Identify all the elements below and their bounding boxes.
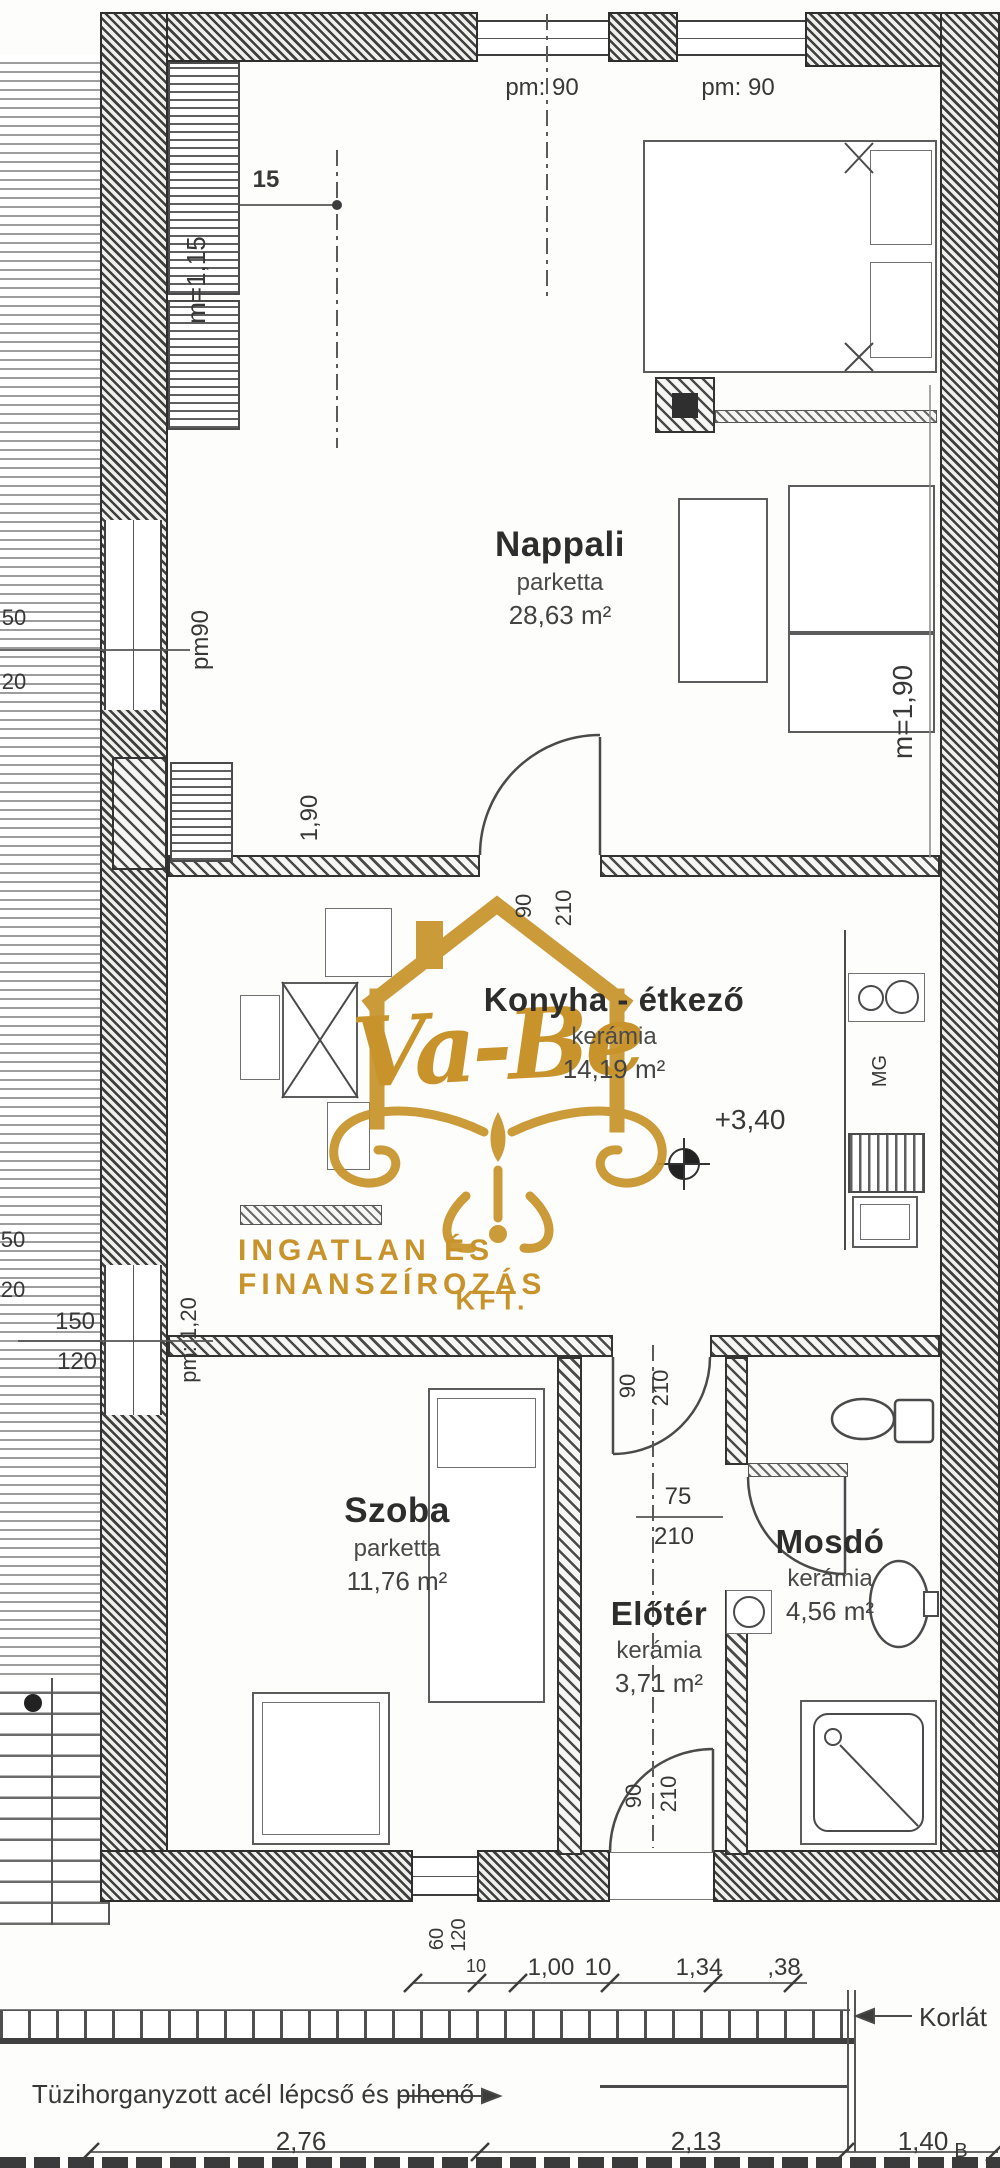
dim-150: 150 — [55, 1310, 95, 1334]
railing-label: Korlát — [919, 2004, 987, 2030]
stairs-note: Tüzihorganyzott acél lépcső és pihenő — [32, 2081, 474, 2107]
konyha-name: Konyha - étkező — [484, 981, 745, 1019]
dim-2-76: 2,76 — [276, 2128, 327, 2154]
door-mosdo-height: 210 — [654, 1525, 694, 1549]
window-left2-label: pm: 1,20 — [178, 1297, 200, 1383]
dim-10-a: 10 — [466, 1957, 486, 1975]
floor-plan-canvas: Va-Be INGATLAN ÉS FINANSZÍROZÁS KFT. Nap… — [0, 0, 1000, 2168]
dim-15: 15 — [253, 168, 280, 192]
flourish-center-bud — [491, 1112, 506, 1162]
mosdo-area: 4,56 m² — [776, 1596, 885, 1627]
dim-20-a: 20 — [2, 671, 26, 693]
eloter-name: Előtér — [611, 1595, 708, 1633]
room-label-eloter: Előtér kerámia 3,71 m² — [611, 1595, 708, 1699]
eloter-area: 3,71 m² — [611, 1668, 708, 1699]
door-mosdo-width: 75 — [665, 1485, 692, 1509]
height-left-label: m=1,15 — [183, 236, 209, 323]
mosdo-name: Mosdó — [776, 1523, 885, 1561]
szoba-floor: parketta — [344, 1535, 450, 1563]
window-top2-label: pm: 90 — [701, 76, 774, 100]
room-label-nappali: Nappali parketta 28,63 m² — [495, 525, 625, 631]
nappali-area: 28,63 m² — [495, 600, 625, 631]
height-right-label: m=1,90 — [889, 665, 917, 759]
section-mark-b: B — [954, 2141, 967, 2161]
dim-60: 60 — [427, 1928, 447, 1950]
eloter-floor: kerámia — [611, 1637, 708, 1665]
window-top1-label: pm: 90 — [505, 76, 578, 100]
konyha-floor: kerámia — [484, 1023, 745, 1051]
dim-20-b: 20 — [1, 1279, 25, 1301]
elevation-label: +3,40 — [715, 1106, 786, 1134]
dim-1-40: 1,40 — [898, 2128, 949, 2154]
dim-1-90: 1,90 — [298, 795, 322, 842]
dim-120: 120 — [57, 1350, 97, 1374]
door3-width: 90 — [623, 1784, 645, 1808]
dim-50-a: 50 — [2, 607, 26, 629]
room-label-mosdo: Mosdó kerámia 4,56 m² — [776, 1523, 885, 1627]
door2-height: 210 — [650, 1370, 672, 1407]
door2-width: 90 — [617, 1374, 639, 1398]
watermark-company-line2: KFT. — [456, 1286, 529, 1317]
konyha-area: 14,19 m² — [484, 1054, 745, 1085]
door1-height: 210 — [553, 890, 575, 927]
szoba-area: 11,76 m² — [344, 1566, 450, 1597]
door3-height: 210 — [658, 1776, 680, 1813]
nappali-name: Nappali — [495, 525, 625, 565]
dim-1-00: 1,00 — [528, 1956, 575, 1980]
mosdo-floor: kerámia — [776, 1565, 885, 1593]
dim-2-13: 2,13 — [671, 2128, 722, 2154]
dim-1-34: 1,34 — [676, 1956, 723, 1980]
dim-120-b: 120 — [449, 1918, 469, 1951]
dim-50-b: 50 — [1, 1229, 25, 1251]
room-label-konyha: Konyha - étkező kerámia 14,19 m² — [484, 981, 745, 1085]
dim-38: ,38 — [767, 1956, 800, 1980]
window-left1-label: pm90 — [189, 610, 213, 670]
door1-width: 90 — [513, 894, 535, 918]
nappali-floor: parketta — [495, 569, 625, 597]
house-chimney — [416, 921, 443, 969]
room-label-szoba: Szoba parketta 11,76 m² — [344, 1491, 450, 1597]
dishwasher-label: MG — [870, 1055, 890, 1087]
szoba-name: Szoba — [344, 1491, 450, 1531]
dim-10-b: 10 — [585, 1956, 612, 1980]
